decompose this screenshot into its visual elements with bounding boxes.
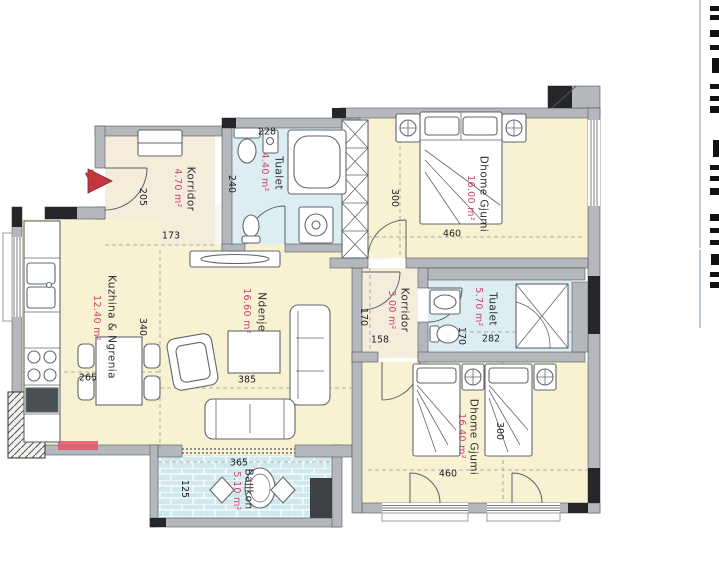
area-label-korridor2: 3.00 m² <box>386 290 396 329</box>
nightstand-lamp-1 <box>396 114 420 142</box>
sofa-right <box>290 305 330 405</box>
nightstand-lamp-4 <box>534 364 556 390</box>
dim-bedroom2-width: 460 <box>439 469 457 479</box>
area-label-korridor1: 4.70 m² <box>172 168 182 207</box>
area-label-kitchen: 12.40 m² <box>91 295 101 341</box>
nightstand-lamp-2 <box>502 114 526 142</box>
dim-living-width: 385 <box>238 375 256 385</box>
dim-balcony-width: 365 <box>230 458 248 468</box>
dim-balcony-height: 125 <box>179 480 189 498</box>
sofa-bottom <box>205 399 295 439</box>
red-wall-mark <box>58 441 98 450</box>
dim-bedroom1-height: 300 <box>389 189 399 207</box>
dim-tualet2-width: 282 <box>482 334 500 344</box>
room-label-tualet2: Tualet <box>487 292 498 326</box>
room-label-kitchen: Kuzhina & Ngrenia <box>106 275 117 379</box>
single-bed-1 <box>413 364 460 456</box>
dim-bedroom2-height: 300 <box>494 422 504 440</box>
dim-korridor1-width: 173 <box>162 231 180 241</box>
dim-korridor2-width: 158 <box>371 335 389 345</box>
double-bed <box>420 112 502 224</box>
nightstand-lamp-3 <box>462 364 484 390</box>
dim-tualet2-height: 170 <box>456 327 466 345</box>
room-label-tualet1: Tualet <box>273 156 284 190</box>
dim-bedroom1-width: 460 <box>443 229 461 239</box>
bathtub <box>288 130 346 194</box>
area-label-bedroom1: 16.00 m² <box>465 175 475 221</box>
clipped-side-text <box>710 6 719 288</box>
coffee-table <box>228 331 280 373</box>
room-label-living: Ndenje <box>256 292 267 331</box>
single-bed-2 <box>485 364 532 456</box>
hall-cabinet <box>138 130 182 156</box>
scan-edge-artifacts <box>699 0 719 328</box>
area-label-living: 16.60 m² <box>241 288 251 334</box>
washing-machine <box>299 207 333 243</box>
room-label-korridor1: Korridor <box>185 167 196 212</box>
room-label-korridor2: Korridor <box>399 288 410 333</box>
shower <box>516 284 568 348</box>
area-label-balcony: 5.10 m² <box>231 471 241 510</box>
toilet-tualet2 <box>430 325 459 343</box>
dim-tualet1-height: 240 <box>226 175 236 193</box>
room-label-bedroom1: Dhome Gjumi <box>478 156 489 232</box>
dim-kitchen-width: 265 <box>79 373 97 383</box>
sink-tualet2 <box>430 290 460 314</box>
area-label-tualet1: 4.40 m² <box>259 152 269 191</box>
floor-plan-page: 24 Korridor 4.70 m² Tualet 4.40 m² Dhome… <box>0 0 719 580</box>
dim-kitchen-height: 340 <box>137 318 147 336</box>
area-label-tualet2: 5.70 m² <box>473 287 483 326</box>
tv-console <box>190 251 280 267</box>
dim-korridor2-height: 170 <box>358 308 368 326</box>
room-label-balcony: Ballkon <box>243 468 254 509</box>
room-label-bedroom2: Dhome Gjumi <box>468 399 479 475</box>
bidet <box>242 215 260 243</box>
armchair <box>166 332 219 391</box>
dim-entry-wall: 205 <box>137 188 147 206</box>
area-label-bedroom2: 16.40 m² <box>456 413 466 459</box>
oven <box>26 388 58 412</box>
dim-tualet1-width: 228 <box>258 127 276 137</box>
